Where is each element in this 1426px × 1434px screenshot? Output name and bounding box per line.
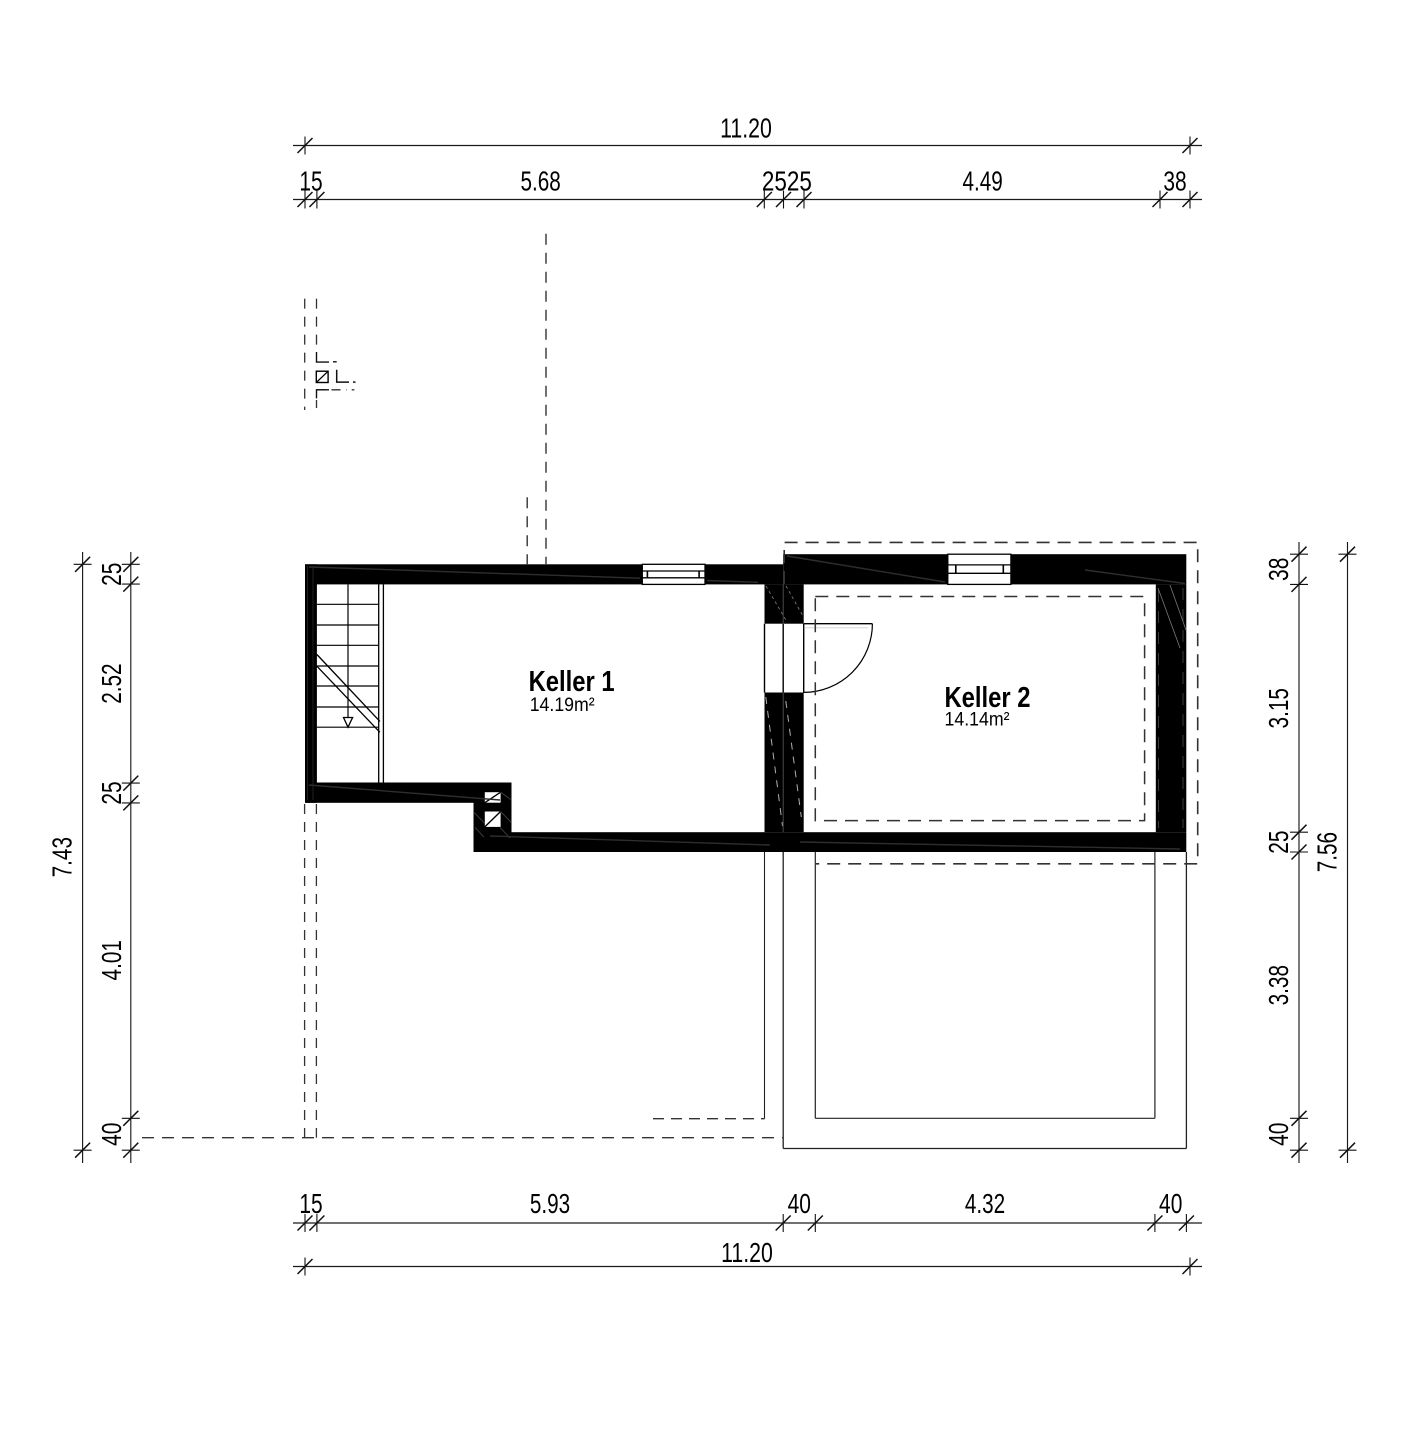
svg-text:14.14m²: 14.14m² [945,709,1010,730]
svg-text:40: 40 [96,1123,127,1146]
svg-text:14.19m²: 14.19m² [530,695,595,716]
svg-text:38: 38 [1163,166,1186,197]
svg-text:25: 25 [96,563,127,586]
svg-text:11.20: 11.20 [721,1237,773,1268]
svg-text:Keller 1: Keller 1 [529,666,615,698]
svg-text:4.49: 4.49 [962,166,1002,197]
svg-text:25: 25 [96,781,127,804]
svg-text:2.52: 2.52 [96,663,127,703]
svg-text:3.15: 3.15 [1263,688,1294,728]
svg-text:38: 38 [1263,558,1294,581]
svg-text:40: 40 [788,1188,811,1219]
svg-text:7.56: 7.56 [1312,832,1343,872]
svg-text:7.43: 7.43 [47,837,78,877]
svg-text:5.93: 5.93 [530,1188,570,1219]
svg-text:40: 40 [1159,1188,1182,1219]
svg-text:3.38: 3.38 [1263,965,1294,1005]
svg-text:11.20: 11.20 [720,112,772,143]
svg-text:25: 25 [1263,830,1294,853]
svg-text:15: 15 [299,1188,322,1219]
svg-text:4.01: 4.01 [96,940,127,980]
svg-text:2525: 2525 [762,166,812,197]
svg-text:5.68: 5.68 [520,166,560,197]
svg-text:4.32: 4.32 [965,1188,1005,1219]
svg-text:40: 40 [1263,1123,1294,1146]
svg-text:15: 15 [299,166,322,197]
